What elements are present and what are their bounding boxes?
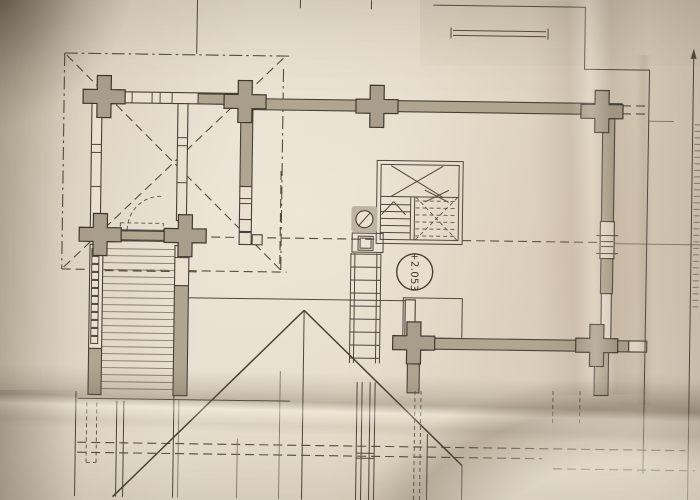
wall-centerline (197, 237, 376, 239)
door-swing-arc (127, 196, 161, 230)
ridge-line (302, 310, 305, 499)
exterior-stair-treads (102, 319, 174, 320)
post (239, 232, 251, 244)
stair-direction-arrow (381, 201, 393, 214)
column-cross (575, 324, 618, 367)
exterior-stair-treads (102, 340, 174, 341)
exterior-wall (247, 99, 622, 115)
exterior-stair-treads (103, 263, 175, 264)
exterior-stair-treads (103, 256, 175, 257)
stair-treads-above (415, 222, 457, 223)
exterior-stair-treads (101, 389, 173, 390)
exterior-stair-treads (103, 249, 175, 250)
column-cross (164, 214, 207, 257)
stair-treads-above (415, 236, 457, 237)
exterior-stair-treads (103, 284, 175, 285)
exterior-stair-treads (103, 277, 175, 278)
grid-line (280, 171, 281, 269)
dimension-arrow (691, 49, 697, 59)
sheet-fold-edge (427, 5, 650, 474)
roof-line (302, 310, 464, 465)
plan-layer: +2.053 (59, 0, 700, 500)
exterior-stair-treads (101, 375, 173, 376)
exterior-stair-treads (102, 354, 174, 355)
exterior-stair-treads (102, 312, 174, 313)
photographed-floor-plan: +2.053 (0, 0, 700, 500)
post (252, 235, 262, 245)
exterior-stair-treads (102, 298, 174, 299)
exterior-stair-treads (102, 333, 174, 334)
exterior-stair-treads (101, 368, 173, 369)
exterior-stair-treads (102, 326, 174, 327)
exterior-stair-treads (101, 361, 173, 362)
log-wall (176, 104, 188, 221)
exterior-stair-treads (102, 291, 174, 292)
stair-treads-above (416, 201, 458, 202)
roof-overhang-boundary (62, 53, 65, 269)
column-cross (356, 85, 399, 128)
column-cross (392, 322, 435, 365)
roof-line (113, 308, 305, 500)
stair-treads-above (415, 215, 457, 216)
column-cross (581, 90, 624, 133)
level-marker-label: +2.053 (408, 252, 420, 292)
wall-centerline (462, 241, 600, 243)
ladder (349, 253, 351, 363)
column-cross (224, 80, 267, 123)
dimension-line (687, 53, 693, 500)
exterior-stair-treads (102, 347, 174, 348)
column-cross (83, 75, 126, 118)
roof-overhang-boundary (65, 53, 290, 56)
stair-treads-above (416, 208, 458, 209)
exterior-stair-treads (102, 305, 174, 306)
floor-plan-svg: +2.053 (0, 0, 700, 500)
post (239, 219, 251, 231)
stair-treads-above (415, 229, 457, 230)
exterior-stair-treads (101, 382, 173, 383)
column-cross (79, 213, 122, 256)
chimney-lower (356, 382, 358, 500)
staircase (376, 160, 463, 244)
